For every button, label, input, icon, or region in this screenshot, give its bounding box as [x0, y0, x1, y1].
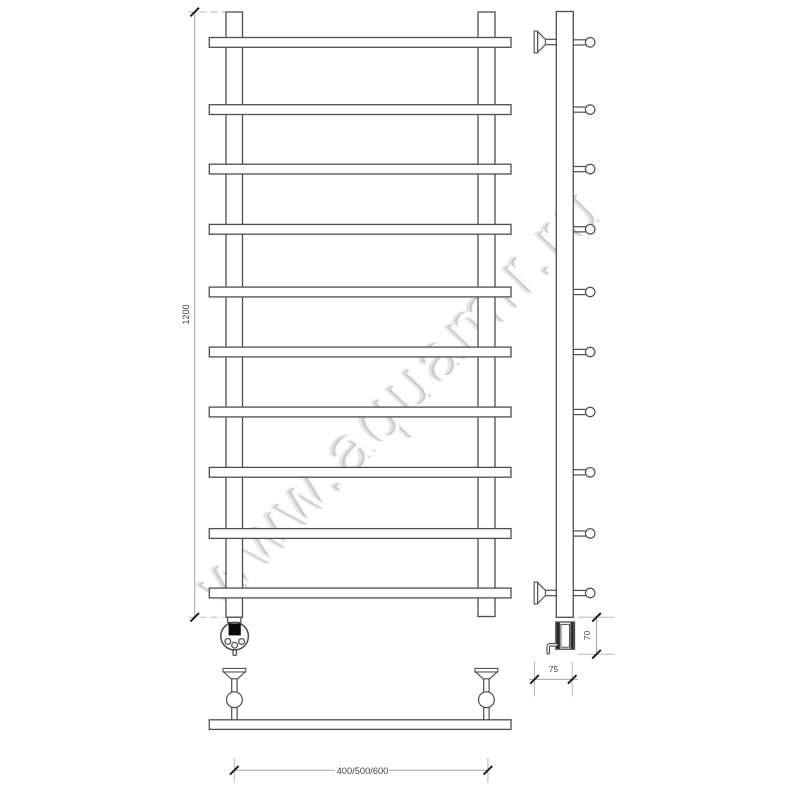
svg-text:75: 75 — [549, 664, 559, 674]
svg-text:1200: 1200 — [181, 304, 191, 324]
svg-text:70: 70 — [582, 631, 592, 641]
svg-text:400/500/600: 400/500/600 — [337, 766, 389, 776]
